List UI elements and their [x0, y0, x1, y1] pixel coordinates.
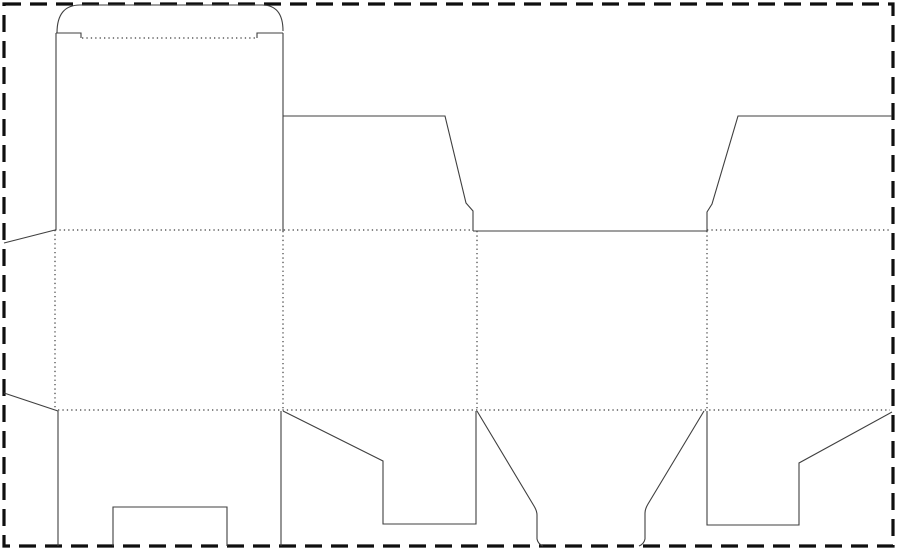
bottom-dust-flap-left [283, 411, 476, 524]
glue-flap-top-edge [4, 230, 55, 243]
page-border [4, 4, 893, 546]
top-shoulder-right [257, 33, 283, 38]
bottom-dust-flap-right [707, 411, 892, 525]
top-flap-right-trapezoid [707, 116, 892, 231]
dieline-svg [0, 0, 900, 552]
dieline-page [0, 0, 900, 552]
glue-flap-bottom-edge [4, 393, 58, 411]
top-shoulder-left [56, 33, 81, 38]
tuck-flap-arc [57, 5, 283, 33]
bottom-tongue-right-edge [639, 411, 704, 546]
bottom-tongue-left-edge [477, 411, 543, 546]
top-flap-left-trapezoid [283, 116, 473, 231]
bottom-flap1-lock-slot [113, 507, 227, 546]
